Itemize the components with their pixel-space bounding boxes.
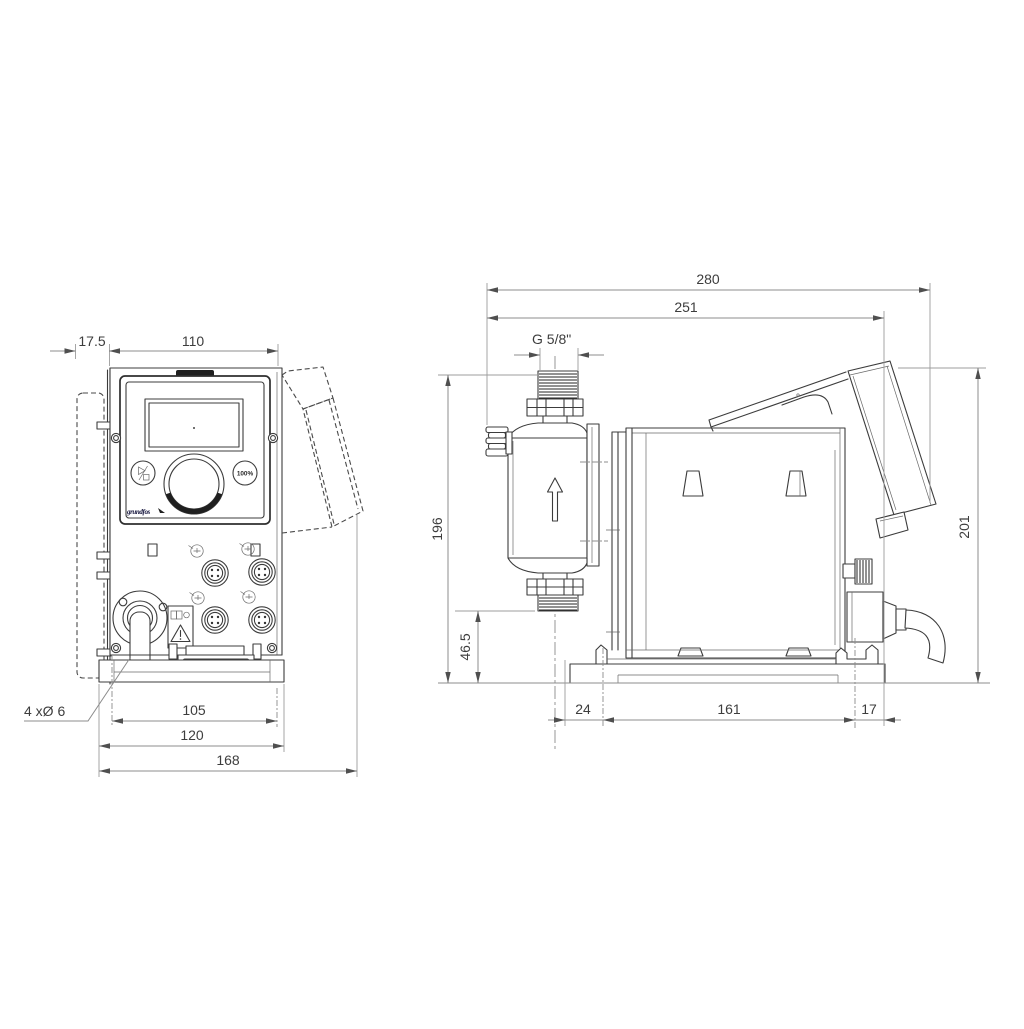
suction-thread [538, 595, 578, 611]
connector-port[interactable] [202, 560, 228, 586]
dim-depth-to-cover: 251 [674, 299, 698, 315]
dimensional-drawing-page: 100% grundfos [0, 0, 1024, 1024]
percent-button[interactable]: 100% [233, 461, 257, 485]
cube-hinge [876, 512, 908, 538]
dim-housing-width: 110 [182, 333, 205, 349]
priming-valve-knob[interactable] [486, 427, 512, 456]
dim-overall-width: 168 [216, 752, 240, 768]
dim-height-to-connection: 196 [429, 517, 445, 541]
front-view: 100% grundfos [24, 333, 363, 777]
wall-bracket [77, 368, 111, 684]
dim-overall-height: 201 [956, 515, 972, 539]
cable-connector [883, 601, 896, 639]
rear-connections [843, 559, 945, 663]
dim-suction-height: 46.5 [457, 633, 473, 660]
side-view: 280 251 G 5/8" 196 46.5 [429, 271, 990, 750]
suction-nut [527, 573, 583, 595]
dosing-head [486, 371, 608, 611]
screw [111, 643, 120, 652]
threaded-plug [855, 559, 872, 584]
dim-connection-thread: G 5/8" [532, 331, 571, 347]
motor-housing [626, 428, 845, 658]
start-stop-button[interactable] [131, 461, 155, 485]
screw [268, 433, 277, 442]
dim-plate-width: 120 [180, 727, 204, 743]
dim-front-offset: 24 [575, 701, 591, 717]
click-wheel[interactable] [164, 454, 224, 514]
pump-dimensional-drawing: 100% grundfos [0, 0, 1024, 1024]
display-dot [193, 427, 195, 429]
brand-logo-text: grundfos [126, 508, 151, 516]
discharge-thread [538, 371, 578, 399]
mounting-holes-label: 4 xØ 6 [24, 703, 65, 719]
display [145, 399, 243, 451]
percent-button-label: 100% [237, 471, 254, 478]
dim-bracket-offset: 17.5 [78, 333, 105, 349]
head-flange [587, 424, 599, 566]
dim-rear-offset: 17 [861, 701, 877, 717]
screw [267, 643, 276, 652]
connector-port[interactable] [249, 607, 275, 633]
warning-label [168, 606, 193, 648]
connector-port[interactable] [249, 559, 275, 585]
panel-tab-left [148, 544, 157, 556]
terminal-box [847, 592, 883, 642]
power-cable-side [905, 610, 945, 663]
connector-port[interactable] [202, 607, 228, 633]
plug-stem [843, 564, 855, 578]
panel-tab-right [251, 544, 260, 556]
dim-overall-depth: 280 [696, 271, 720, 287]
open-control-cube-projection [282, 367, 363, 533]
screw [111, 433, 120, 442]
dim-foot-length: 161 [717, 701, 741, 717]
discharge-nut [527, 399, 583, 416]
dim-hole-pitch: 105 [182, 702, 206, 718]
